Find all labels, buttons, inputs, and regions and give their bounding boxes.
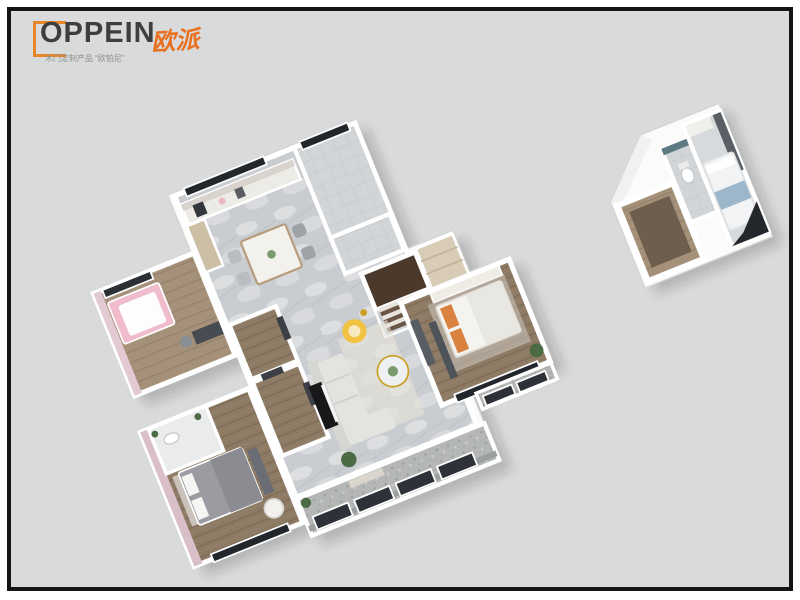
annex-unit bbox=[591, 101, 783, 298]
main-unit bbox=[60, 82, 592, 587]
floorplan-render bbox=[11, 11, 789, 587]
page: OPPEIN 欧派 木门定制产品 “欧铂尼” bbox=[0, 0, 800, 600]
border-frame: OPPEIN 欧派 木门定制产品 “欧铂尼” bbox=[7, 7, 793, 591]
